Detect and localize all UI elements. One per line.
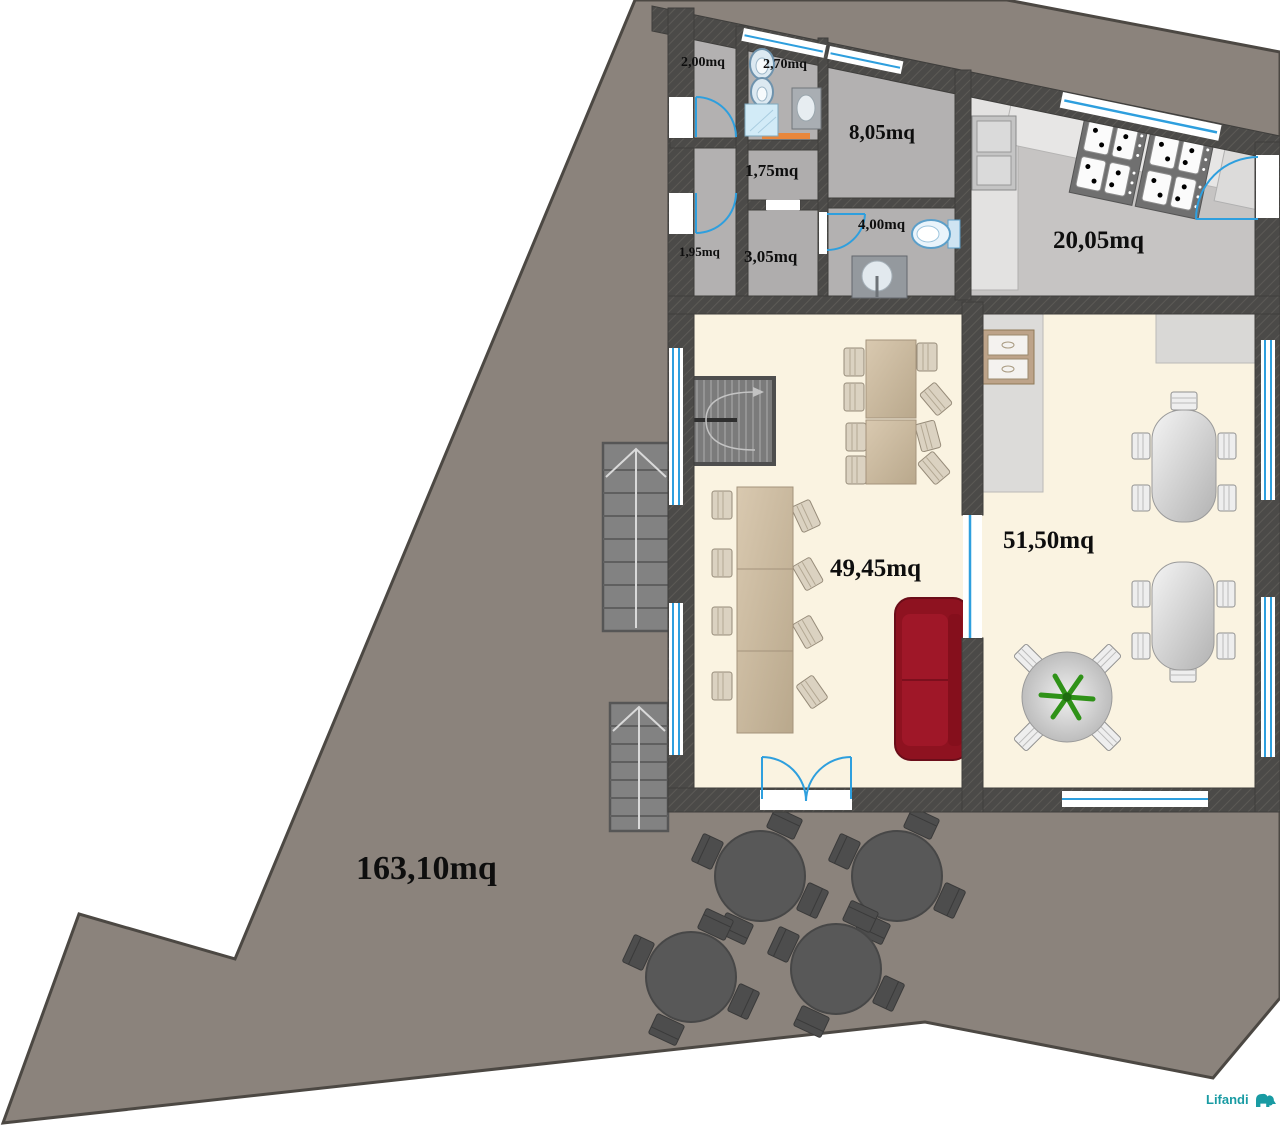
room-label-dining: 51,50mq	[1003, 528, 1094, 553]
room-label-hall: 49,45mq	[830, 556, 921, 581]
room-label-305: 3,05mq	[744, 248, 797, 265]
room-label-195: 1,95mq	[679, 245, 720, 258]
floor-plan-canvas: 2,00mq 2,70mq 8,05mq 1,75mq 1,95mq 3,05m…	[0, 0, 1280, 1126]
exterior-stair-lower	[610, 703, 668, 831]
dining-cabinet	[982, 330, 1034, 384]
staircase-interior	[690, 378, 774, 464]
room-label-terrace: 163,10mq	[356, 852, 497, 886]
room-label-175: 1,75mq	[745, 162, 798, 179]
elephant-icon	[1253, 1090, 1277, 1108]
floor-plan-drawing	[0, 0, 1280, 1126]
room-label-270: 2,70mq	[763, 58, 807, 72]
room-label-kitchen: 20,05mq	[1053, 228, 1144, 253]
room-label-400: 4,00mq	[858, 218, 905, 233]
logo-text: Lifandi	[1206, 1092, 1249, 1107]
exterior-stair-upper	[603, 443, 669, 631]
room-label-200: 2,00mq	[681, 56, 725, 70]
kitchen-sink	[972, 116, 1016, 190]
logo: Lifandi	[1206, 1090, 1277, 1108]
sofa	[895, 598, 969, 760]
room-label-805: 8,05mq	[849, 122, 915, 143]
